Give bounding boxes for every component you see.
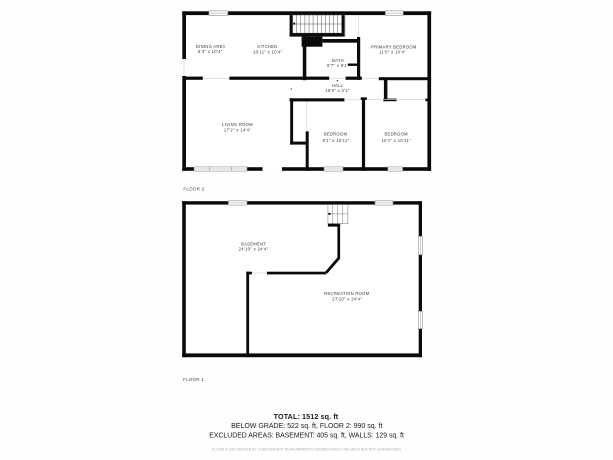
svg-text:BEDROOM: BEDROOM: [324, 132, 348, 137]
svg-text:BEDROOM: BEDROOM: [385, 132, 409, 137]
svg-text:EXCLUDED AREAS: BASEMENT: 405: EXCLUDED AREAS: BASEMENT: 405 sq. ft, WA…: [209, 432, 404, 439]
svg-text:KITCHEN: KITCHEN: [257, 44, 277, 49]
svg-text:9'1" x 10'11": 9'1" x 10'11": [323, 138, 350, 143]
svg-text:10'1" x 10'11": 10'1" x 10'11": [381, 138, 411, 143]
svg-text:BELOW GRADE: 522 sq. ft, FLOOR: BELOW GRADE: 522 sq. ft, FLOOR 2: 990 sq…: [231, 423, 382, 430]
svg-text:RECREATION ROOM: RECREATION ROOM: [324, 291, 369, 296]
svg-text:FLOOR PLAN CREATED BY CUBICASA: FLOOR PLAN CREATED BY CUBICASA APP. MEAS…: [212, 447, 402, 451]
svg-text:8'4" x 10'4": 8'4" x 10'4": [198, 49, 223, 54]
svg-text:8'7" x 6'1": 8'7" x 6'1": [327, 63, 349, 68]
svg-text:11'0" x 10'4": 11'0" x 10'4": [379, 50, 406, 55]
svg-text:TOTAL: 1512 sq. ft: TOTAL: 1512 sq. ft: [274, 412, 339, 421]
svg-text:PRIMARY BEDROOM: PRIMARY BEDROOM: [371, 44, 417, 49]
svg-text:15'6" x 3'1": 15'6" x 3'1": [325, 88, 350, 93]
svg-text:LIVING ROOM: LIVING ROOM: [222, 122, 253, 127]
svg-text:27'10" x 24'4": 27'10" x 24'4": [332, 296, 362, 301]
svg-text:24'10" x 24'4": 24'10" x 24'4": [239, 246, 269, 251]
svg-text:FLOOR 1: FLOOR 1: [183, 377, 204, 382]
svg-text:17'2" x 14'4": 17'2" x 14'4": [224, 127, 251, 132]
svg-text:FLOOR 2: FLOOR 2: [183, 187, 204, 192]
svg-text:10'11" x 10'4": 10'11" x 10'4": [253, 49, 283, 54]
